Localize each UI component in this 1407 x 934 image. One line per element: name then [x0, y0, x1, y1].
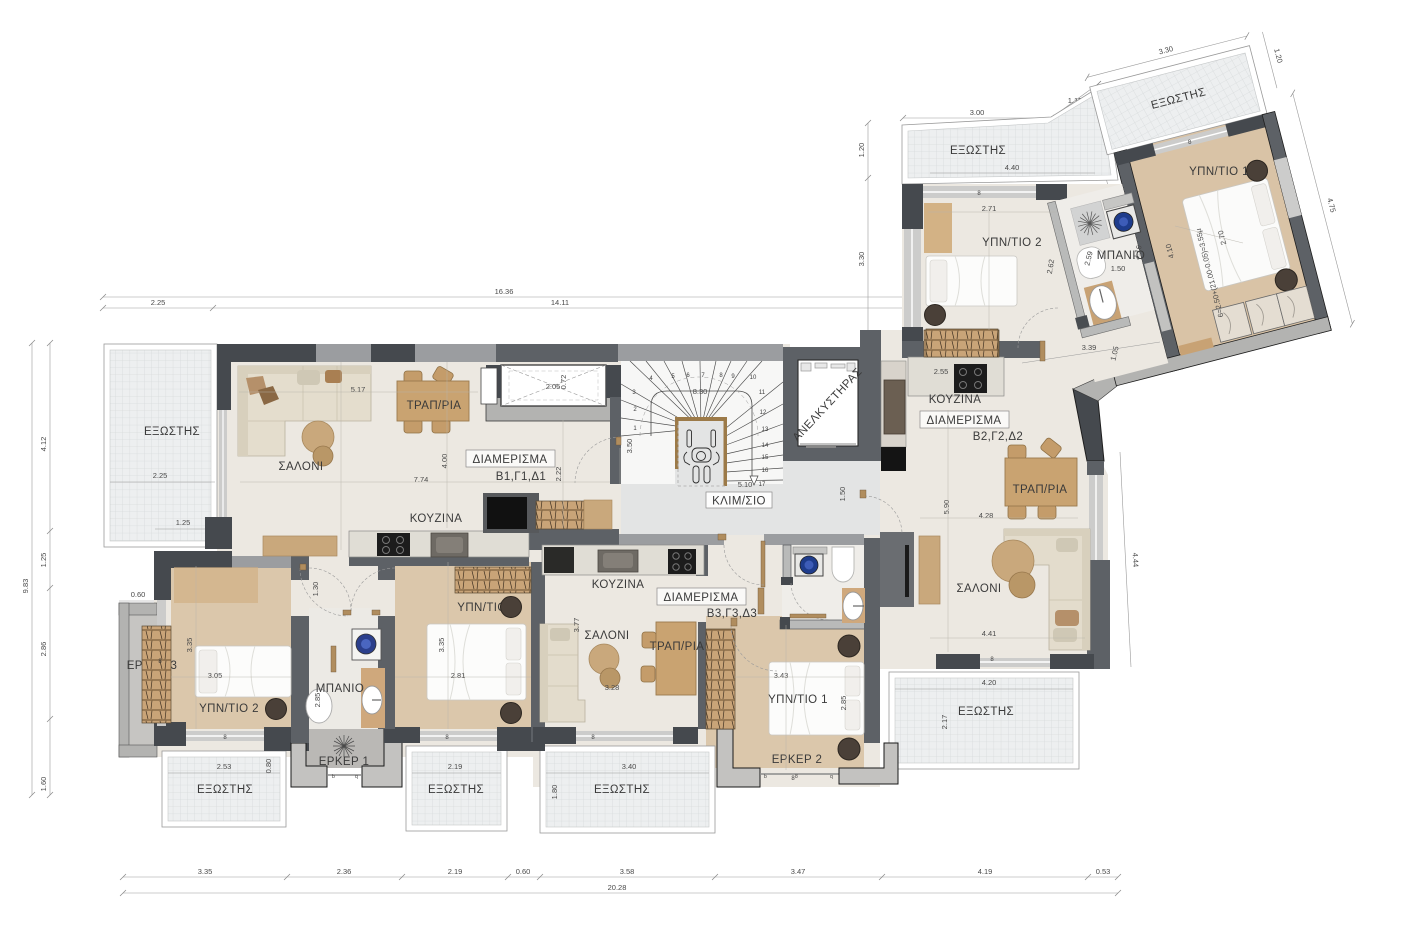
svg-text:3.35: 3.35 [198, 867, 213, 876]
svg-text:0.60: 0.60 [131, 590, 146, 599]
svg-text:0.80: 0.80 [264, 759, 273, 774]
svg-text:ΕΞΩΣΤΗΣ: ΕΞΩΣΤΗΣ [958, 706, 1014, 718]
svg-text:ΕΞΩΣΤΗΣ: ΕΞΩΣΤΗΣ [950, 145, 1006, 157]
svg-text:14: 14 [762, 443, 769, 449]
svg-text:ΣΑΛΟΝΙ: ΣΑΛΟΝΙ [278, 461, 323, 473]
svg-text:2.17: 2.17 [940, 715, 949, 730]
svg-text:b: b [332, 774, 335, 780]
svg-text:ΕΞΩΣΤΗΣ: ΕΞΩΣΤΗΣ [144, 426, 200, 438]
svg-text:5.10: 5.10 [738, 480, 753, 489]
svg-text:ΥΠΝ/ΤΙΟ 2: ΥΠΝ/ΤΙΟ 2 [199, 703, 259, 715]
svg-text:ΚΛΙΜ/ΣΙΟ: ΚΛΙΜ/ΣΙΟ [712, 496, 766, 508]
svg-text:4.12: 4.12 [39, 437, 48, 452]
svg-text:10: 10 [750, 375, 757, 381]
svg-text:20.28: 20.28 [608, 883, 627, 892]
svg-text:3.40: 3.40 [622, 762, 637, 771]
svg-text:16: 16 [762, 468, 769, 474]
svg-text:2.19: 2.19 [448, 867, 463, 876]
svg-text:2.85: 2.85 [839, 696, 848, 711]
svg-text:Β2,Γ2,Δ2: Β2,Γ2,Δ2 [973, 431, 1023, 443]
svg-text:2.22: 2.22 [554, 467, 563, 482]
svg-text:16.36: 16.36 [495, 287, 514, 296]
svg-text:ΥΠΝ/ΤΙΟ 1: ΥΠΝ/ΤΙΟ 1 [1189, 166, 1249, 178]
svg-text:ΕΡΚΕΡ 2: ΕΡΚΕΡ 2 [772, 754, 823, 766]
svg-text:b: b [764, 774, 767, 780]
svg-text:Β1,Γ1,Δ1: Β1,Γ1,Δ1 [496, 471, 546, 483]
svg-text:2.81: 2.81 [451, 671, 466, 680]
svg-text:3.50: 3.50 [625, 439, 634, 454]
svg-text:3.58: 3.58 [620, 867, 635, 876]
svg-text:4.44: 4.44 [1131, 552, 1141, 567]
svg-text:13: 13 [762, 427, 769, 433]
svg-text:1.30: 1.30 [311, 582, 320, 597]
svg-text:1.50: 1.50 [1111, 264, 1126, 273]
svg-text:3.47: 3.47 [791, 867, 806, 876]
svg-text:4.19: 4.19 [978, 867, 993, 876]
svg-text:ΕΞΩΣΤΗΣ: ΕΞΩΣΤΗΣ [594, 784, 650, 796]
svg-text:ΕΞΩΣΤΗΣ: ΕΞΩΣΤΗΣ [428, 784, 484, 796]
svg-text:4.40: 4.40 [1005, 163, 1020, 172]
svg-text:2.53: 2.53 [217, 762, 232, 771]
svg-text:8: 8 [795, 774, 798, 780]
svg-text:2.36: 2.36 [337, 867, 352, 876]
svg-text:3.39: 3.39 [1082, 343, 1097, 352]
svg-text:ΔΙΑΜΕΡΙΣΜΑ: ΔΙΑΜΕΡΙΣΜΑ [663, 592, 738, 604]
svg-text:3.30: 3.30 [857, 252, 866, 267]
svg-text:ΥΠΝ/ΤΙΟ: ΥΠΝ/ΤΙΟ [457, 602, 506, 614]
svg-text:ΤΡΑΠ/ΡΙΑ: ΤΡΑΠ/ΡΙΑ [650, 641, 705, 653]
svg-text:3.35: 3.35 [437, 638, 446, 653]
svg-text:ΣΑΛΟΝΙ: ΣΑΛΟΝΙ [584, 630, 629, 642]
svg-text:ΚΟΥΖΙΝΑ: ΚΟΥΖΙΝΑ [929, 394, 982, 406]
svg-text:15: 15 [762, 455, 769, 461]
svg-text:14.11: 14.11 [551, 298, 569, 307]
svg-text:ΥΠΝ/ΤΙΟ 2: ΥΠΝ/ΤΙΟ 2 [982, 237, 1042, 249]
svg-text:1.50: 1.50 [838, 487, 847, 502]
svg-text:2.86: 2.86 [39, 642, 48, 657]
svg-text:17: 17 [759, 482, 766, 488]
svg-text:ΚΟΥΖΙΝΑ: ΚΟΥΖΙΝΑ [410, 513, 463, 525]
svg-text:4.20: 4.20 [982, 678, 997, 687]
svg-text:4.28: 4.28 [979, 511, 994, 520]
svg-text:ΕΡΚΕΡ 1: ΕΡΚΕΡ 1 [319, 756, 370, 768]
svg-text:2.55: 2.55 [934, 367, 949, 376]
svg-text:ΤΡΑΠ/ΡΙΑ: ΤΡΑΠ/ΡΙΑ [1013, 484, 1068, 496]
svg-text:0.53: 0.53 [1096, 867, 1111, 876]
svg-text:ΤΡΑΠ/ΡΙΑ: ΤΡΑΠ/ΡΙΑ [407, 400, 462, 412]
svg-text:12: 12 [760, 410, 767, 416]
svg-text:ΥΠΝ/ΤΙΟ 1: ΥΠΝ/ΤΙΟ 1 [768, 694, 828, 706]
svg-text:ΔΙΑΜΕΡΙΣΜΑ: ΔΙΑΜΕΡΙΣΜΑ [926, 415, 1001, 427]
svg-text:2.19: 2.19 [448, 762, 463, 771]
svg-text:q: q [830, 774, 833, 780]
svg-text:ΜΠΑΝΙΟ: ΜΠΑΝΙΟ [316, 683, 364, 695]
svg-text:8.30: 8.30 [693, 387, 708, 396]
svg-text:3.35: 3.35 [185, 638, 194, 653]
svg-text:2.85: 2.85 [313, 693, 322, 708]
svg-text:4.00: 4.00 [440, 454, 449, 469]
svg-text:4.41: 4.41 [982, 629, 997, 638]
svg-text:3.28: 3.28 [605, 683, 620, 692]
svg-text:1.20: 1.20 [857, 143, 866, 158]
svg-text:ΚΟΥΖΙΝΑ: ΚΟΥΖΙΝΑ [592, 579, 645, 591]
svg-text:7.74: 7.74 [414, 475, 429, 484]
svg-text:ΔΙΑΜΕΡΙΣΜΑ: ΔΙΑΜΕΡΙΣΜΑ [472, 454, 547, 466]
svg-text:3.00: 3.00 [970, 108, 985, 117]
svg-text:ΣΑΛΟΝΙ: ΣΑΛΟΝΙ [956, 583, 1001, 595]
svg-text:11: 11 [759, 390, 766, 396]
svg-text:1.60: 1.60 [39, 777, 48, 792]
svg-text:1.80: 1.80 [550, 785, 559, 800]
svg-text:ΕΞΩΣΤΗΣ: ΕΞΩΣΤΗΣ [197, 784, 253, 796]
svg-text:5.90: 5.90 [942, 500, 951, 515]
svg-text:1.25: 1.25 [39, 553, 48, 568]
svg-text:q: q [355, 774, 358, 780]
svg-text:3.05: 3.05 [208, 671, 223, 680]
svg-text:0.72: 0.72 [559, 375, 568, 390]
svg-text:5.17: 5.17 [351, 385, 366, 394]
svg-text:9.83: 9.83 [21, 579, 30, 594]
svg-text:3.77: 3.77 [572, 618, 581, 633]
svg-text:0.60: 0.60 [516, 867, 531, 876]
svg-text:2.25: 2.25 [151, 298, 166, 307]
svg-text:1.25: 1.25 [176, 518, 191, 527]
svg-text:2.25: 2.25 [153, 471, 168, 480]
